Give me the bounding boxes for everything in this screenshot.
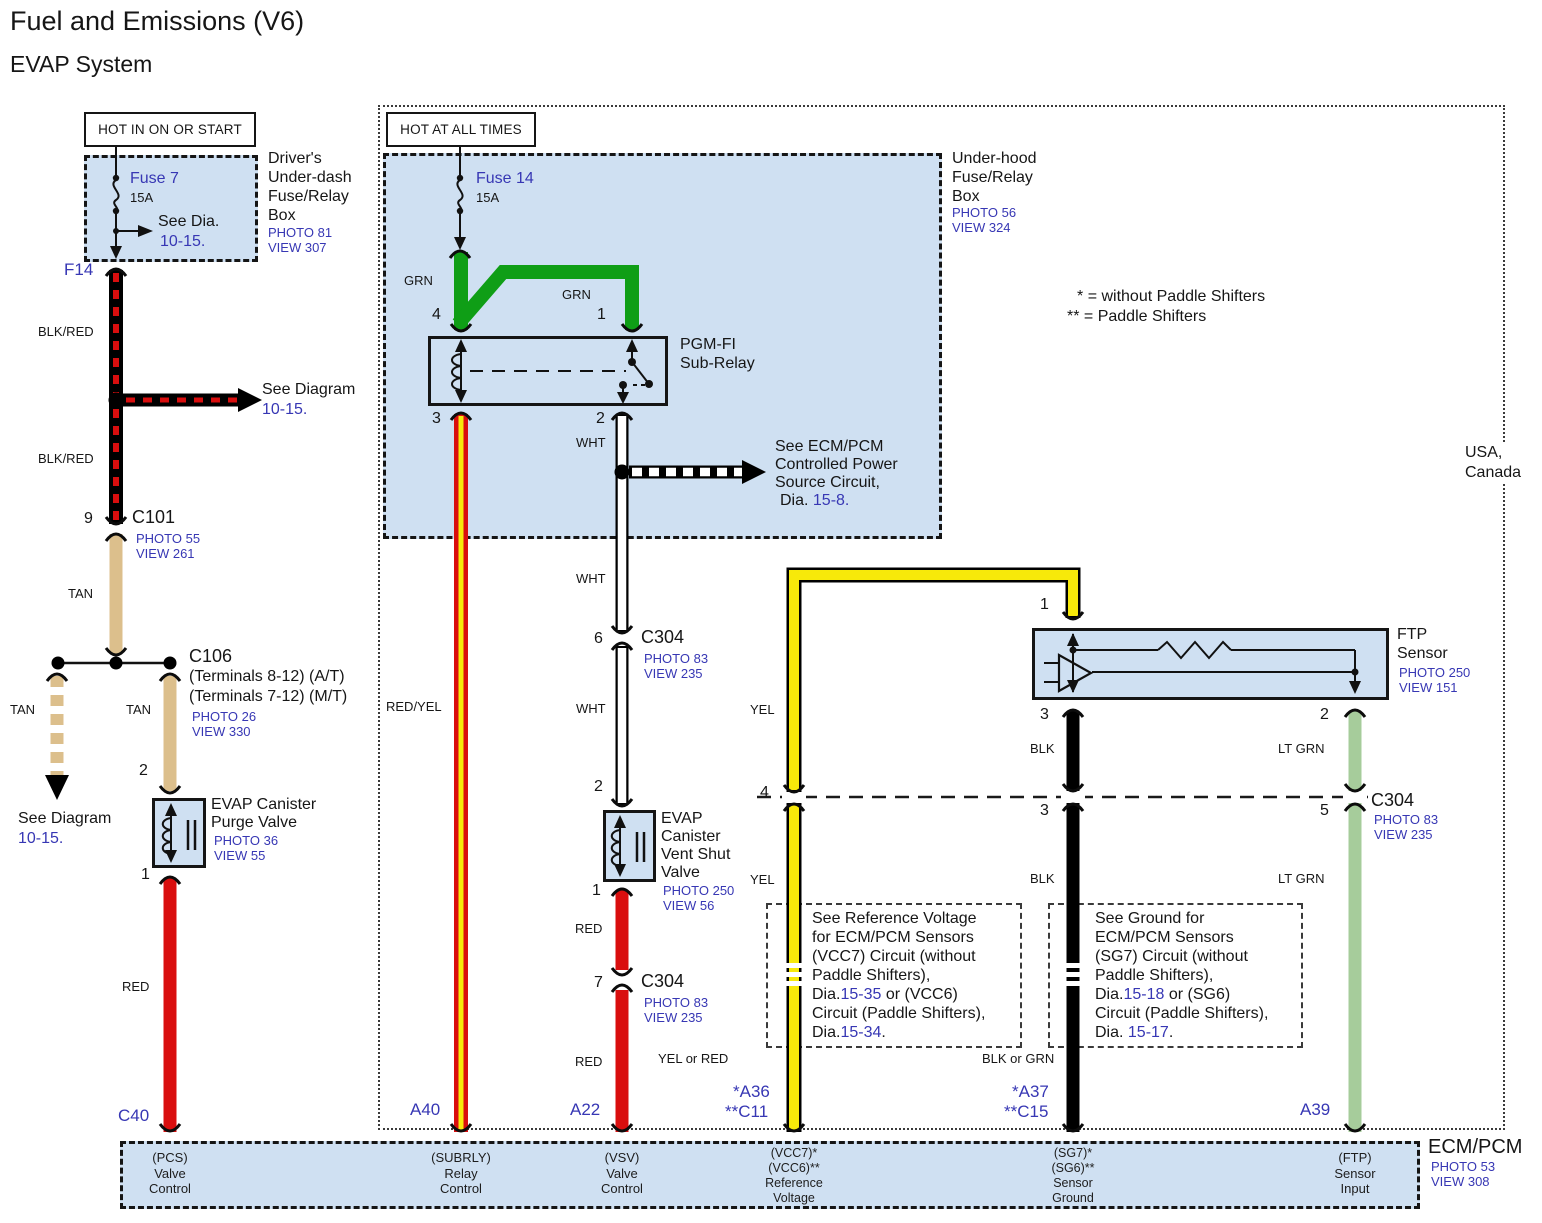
ref-note-5-pre: Dia. xyxy=(812,986,840,1003)
fuse7-rating: 15A xyxy=(130,191,153,206)
vent-valve-name-1: EVAP xyxy=(661,810,703,828)
see-ecm-line-3: Source Circuit, xyxy=(775,474,880,492)
c106-terminals-at: (Terminals 8-12) (A/T) xyxy=(189,668,345,686)
terminal-subrly-line3: Control xyxy=(396,1181,526,1197)
c304b-photo-link[interactable]: PHOTO 83 xyxy=(644,996,708,1011)
wire-label-grn-2: GRN xyxy=(562,288,591,303)
ftp-pin-2: 2 xyxy=(1320,706,1329,724)
legend-line-1: * = without Paddle Shifters xyxy=(1077,288,1265,306)
page-subtitle: EVAP System xyxy=(10,52,152,78)
ref-note-line-6: Circuit (Paddle Shifters), xyxy=(812,1005,985,1023)
wire-label-blk-red-2: BLK/RED xyxy=(38,452,94,467)
relay-pin-1: 1 xyxy=(597,306,606,324)
vent-valve-view-link[interactable]: VIEW 56 xyxy=(663,899,714,914)
terminal-vsv-line3: Control xyxy=(557,1181,687,1197)
driver-box-name-1: Driver's xyxy=(268,150,322,168)
wires-layer xyxy=(0,0,1542,1223)
wire-blk-red xyxy=(109,270,263,524)
vent-pin-1: 1 xyxy=(592,882,601,900)
connector-a37[interactable]: *A37 xyxy=(1012,1082,1049,1101)
terminal-pcs-line2: Valve xyxy=(105,1166,235,1182)
connector-a22[interactable]: A22 xyxy=(570,1100,600,1119)
wire-label-yel-or-red: YEL or RED xyxy=(658,1052,728,1067)
banner-hot-at-all-times: HOT AT ALL TIMES xyxy=(386,112,536,147)
driver-see-dia: See Dia. xyxy=(158,213,219,231)
vent-valve-name-3: Vent Shut xyxy=(661,846,730,864)
terminal-subrly-line2: Relay xyxy=(396,1166,526,1182)
connector-c304-b: C304 xyxy=(641,971,684,991)
banner-hot-in-on-or-start: HOT IN ON OR START xyxy=(84,112,256,147)
ftp-photo-link[interactable]: PHOTO 250 xyxy=(1399,666,1470,681)
driver-box-view-link[interactable]: VIEW 307 xyxy=(268,241,327,256)
ref-note-7-pre: Dia. xyxy=(812,1024,840,1041)
terminal-pcs-id: (PCS) xyxy=(105,1150,235,1166)
terminal-sg-id2: (SG6)** xyxy=(1008,1161,1138,1176)
terminal-vsv-line2: Valve xyxy=(557,1166,687,1182)
fuse7-label[interactable]: Fuse 7 xyxy=(130,170,179,188)
terminal-sg-line4: Ground xyxy=(1008,1191,1138,1206)
wire-yel xyxy=(785,575,1073,1132)
c304a-pin-6: 6 xyxy=(594,630,603,648)
relay-pin-2: 2 xyxy=(596,410,605,428)
see-ecm-line-1: See ECM/PCM xyxy=(775,438,883,456)
purge-pin-1: 1 xyxy=(141,866,150,884)
ftp-pin-1: 1 xyxy=(1040,596,1049,614)
vent-valve-photo-link[interactable]: PHOTO 250 xyxy=(663,884,734,899)
wire-label-red-yel: RED/YEL xyxy=(386,700,442,715)
c304a-photo-link[interactable]: PHOTO 83 xyxy=(644,652,708,667)
gnd-note-7-link[interactable]: 15-17 xyxy=(1128,1024,1169,1041)
ecm-terminal-vcc: (VCC7)* (VCC6)** Reference Voltage xyxy=(729,1146,859,1206)
c304c-view-link[interactable]: VIEW 235 xyxy=(1374,828,1433,843)
vent-pin-2: 2 xyxy=(594,778,603,796)
wire-label-blk-red-1: BLK/RED xyxy=(38,325,94,340)
wire-label-blk-or-grn: BLK or GRN xyxy=(982,1052,1054,1067)
see-diagram-bottom-link[interactable]: 10-15. xyxy=(18,830,63,848)
terminal-vcc-id2: (VCC6)** xyxy=(729,1161,859,1176)
wire-blk xyxy=(1064,711,1082,1132)
relay-pin-3: 3 xyxy=(432,410,441,428)
wiring-diagram-page: HOT IN ON OR START HOT AT ALL TIMES Fuel… xyxy=(0,0,1542,1223)
wire-label-ltgrn-1: LT GRN xyxy=(1278,742,1324,757)
fuse14-rating: 15A xyxy=(476,191,499,206)
wire-label-wht-3: WHT xyxy=(576,702,606,717)
gnd-note-line-4: Paddle Shifters), xyxy=(1095,967,1213,985)
underhood-name-2: Fuse/Relay xyxy=(952,169,1033,187)
ref-note-5-post: or (VCC6) xyxy=(881,986,957,1003)
wire-label-grn-1: GRN xyxy=(404,274,433,289)
driver-box-photo-link[interactable]: PHOTO 81 xyxy=(268,226,332,241)
purge-valve-view-link[interactable]: VIEW 55 xyxy=(214,849,265,864)
connector-c101: C101 xyxy=(132,507,175,527)
c101-photo-link[interactable]: PHOTO 55 xyxy=(136,532,200,547)
ftp-sensor-name-1: FTP xyxy=(1397,626,1427,644)
legend-line-2: ** = Paddle Shifters xyxy=(1067,308,1206,326)
see-diagram-bottom: See Diagram xyxy=(18,810,111,828)
ecm-pcm-label: ECM/PCM xyxy=(1428,1136,1522,1158)
wire-tan xyxy=(45,534,170,800)
c304b-view-link[interactable]: VIEW 235 xyxy=(644,1011,703,1026)
connector-c40[interactable]: C40 xyxy=(118,1106,149,1125)
ref-note-7-link[interactable]: 15-34 xyxy=(840,1024,881,1041)
connector-f14[interactable]: F14 xyxy=(64,260,93,279)
driver-box-name-3: Fuse/Relay xyxy=(268,188,349,206)
gnd-note-line-6: Circuit (Paddle Shifters), xyxy=(1095,1005,1268,1023)
gnd-note-line-5: Dia.15-18 or (SG6) xyxy=(1095,986,1230,1004)
wire-label-yel-1: YEL xyxy=(750,703,775,718)
wire-wht xyxy=(615,414,767,805)
terminal-ftp-line2: Sensor xyxy=(1290,1166,1420,1182)
banner-mid-text: HOT AT ALL TIMES xyxy=(400,122,522,137)
region-label-usa: USA, xyxy=(1462,444,1505,462)
c106-terminals-mt: (Terminals 7-12) (M/T) xyxy=(189,688,347,706)
relay-name-2: Sub-Relay xyxy=(680,355,755,373)
driver-box-name-2: Under-dash xyxy=(268,169,352,187)
c101-view-link[interactable]: VIEW 261 xyxy=(136,547,195,562)
see-diagram-mid-link[interactable]: 10-15. xyxy=(262,401,307,419)
ref-note-line-1: See Reference Voltage xyxy=(812,910,977,928)
c304b-pin-7: 7 xyxy=(594,974,603,992)
ref-note-7-post: . xyxy=(881,1024,885,1041)
fuse14-label[interactable]: Fuse 14 xyxy=(476,170,534,188)
wire-label-tan-right: TAN xyxy=(126,703,151,718)
ecm-terminal-subrly: (SUBRLY) Relay Control xyxy=(396,1150,526,1197)
wire-label-blk-1: BLK xyxy=(1030,742,1055,757)
legend-star-1: * xyxy=(1077,288,1083,305)
ecm-terminal-pcs: (PCS) Valve Control xyxy=(105,1150,235,1197)
underhood-photo-link[interactable]: PHOTO 56 xyxy=(952,206,1016,221)
gnd-note-7-pre: Dia. xyxy=(1095,1024,1128,1041)
ftp-sensor-internals xyxy=(1044,633,1361,694)
ftp-sensor-name-2: Sensor xyxy=(1397,645,1448,663)
terminal-subrly-id: (SUBRLY) xyxy=(396,1150,526,1166)
ref-note-line-4: Paddle Shifters), xyxy=(812,967,930,985)
see-diagram-mid: See Diagram xyxy=(262,381,355,399)
gnd-note-7-post: . xyxy=(1169,1024,1173,1041)
wire-label-ltgrn-2: LT GRN xyxy=(1278,872,1324,887)
wire-label-wht-1: WHT xyxy=(576,436,606,451)
connector-c304-a: C304 xyxy=(641,627,684,647)
ref-note-line-2: for ECM/PCM Sensors xyxy=(812,929,974,947)
c304c-pin-4: 4 xyxy=(760,784,769,802)
ecm-view-link[interactable]: VIEW 308 xyxy=(1431,1175,1490,1190)
connector-c15[interactable]: **C15 xyxy=(1004,1102,1048,1121)
ref-note-5-link[interactable]: 15-35 xyxy=(840,986,881,1003)
underhood-name-3: Box xyxy=(952,188,980,206)
gnd-note-line-2: ECM/PCM Sensors xyxy=(1095,929,1234,947)
wire-label-blk-2: BLK xyxy=(1030,872,1055,887)
driver-see-dia-link[interactable]: 10-15. xyxy=(160,233,205,251)
page-title: Fuel and Emissions (V6) xyxy=(10,6,304,36)
banner-left-text: HOT IN ON OR START xyxy=(98,122,242,137)
vent-valve-name-2: Canister xyxy=(661,828,721,846)
c304-connector-line xyxy=(757,789,1368,805)
terminal-vsv-id: (VSV) xyxy=(557,1150,687,1166)
gnd-note-line-1: See Ground for xyxy=(1095,910,1204,928)
connector-a40[interactable]: A40 xyxy=(410,1100,440,1119)
relay-name-1: PGM-FI xyxy=(680,336,736,354)
wire-label-wht-2: WHT xyxy=(576,572,606,587)
legend-text-2: = Paddle Shifters xyxy=(1084,308,1206,325)
see-ecm-dia-link[interactable]: 15-8. xyxy=(813,492,849,509)
ecm-photo-link[interactable]: PHOTO 53 xyxy=(1431,1160,1495,1175)
fuse14-symbol xyxy=(454,143,466,250)
connector-a36[interactable]: *A36 xyxy=(733,1082,770,1101)
vent-valve-name-4: Valve xyxy=(661,864,700,882)
tan-left-text: TAN xyxy=(10,702,35,717)
terminal-ftp-line3: Input xyxy=(1290,1181,1420,1197)
legend-star-2: ** xyxy=(1067,308,1079,325)
wire-label-red-mid-1: RED xyxy=(575,922,602,937)
terminal-pcs-line3: Control xyxy=(105,1181,235,1197)
terminal-sg-id1: (SG7)* xyxy=(1008,1146,1138,1161)
c106-photo-link[interactable]: PHOTO 26 xyxy=(192,710,256,725)
ref-note-line-7: Dia.15-34. xyxy=(812,1024,886,1042)
ref-note-line-5: Dia.15-35 or (VCC6) xyxy=(812,986,958,1004)
purge-valve-name-2: Purge Valve xyxy=(211,814,297,832)
ecm-terminal-ftp: (FTP) Sensor Input xyxy=(1290,1150,1420,1197)
c106-view-link[interactable]: VIEW 330 xyxy=(192,725,251,740)
gnd-note-line-7: Dia. 15-17. xyxy=(1095,1024,1173,1042)
see-ecm-line-4: Dia. 15-8. xyxy=(780,492,849,510)
gnd-note-5-pre: Dia. xyxy=(1095,986,1123,1003)
ecm-terminal-vsv: (VSV) Valve Control xyxy=(557,1150,687,1197)
c304a-view-link[interactable]: VIEW 235 xyxy=(644,667,703,682)
purge-valve-internals xyxy=(163,803,195,863)
vent-valve-internals xyxy=(612,815,644,877)
wire-label-tan-mid: TAN xyxy=(68,587,93,602)
underhood-view-link[interactable]: VIEW 324 xyxy=(952,221,1011,236)
terminal-vcc-id1: (VCC7)* xyxy=(729,1146,859,1161)
wire-label-yel-2: YEL xyxy=(750,873,775,888)
underhood-name-1: Under-hood xyxy=(952,150,1037,168)
relay-pin-4: 4 xyxy=(432,306,441,324)
terminal-vcc-line3: Reference xyxy=(729,1176,859,1191)
wire-label-tan-left: TAN xyxy=(10,703,35,718)
purge-valve-photo-link[interactable]: PHOTO 36 xyxy=(214,834,278,849)
c304c-pin-3: 3 xyxy=(1040,802,1049,820)
gnd-note-line-3: (SG7) Circuit (without xyxy=(1095,948,1248,966)
connector-c304-c: C304 xyxy=(1371,790,1414,810)
see-ecm-dia-text: Dia. xyxy=(780,492,813,509)
ref-note-line-3: (VCC7) Circuit (without xyxy=(812,948,976,966)
terminal-ftp-id: (FTP) xyxy=(1290,1150,1420,1166)
purge-valve-name-1: EVAP Canister xyxy=(211,796,316,814)
connector-c11[interactable]: **C11 xyxy=(725,1102,768,1121)
legend-text-1: = without Paddle Shifters xyxy=(1088,288,1265,305)
purge-pin-2: 2 xyxy=(139,762,148,780)
ftp-view-link[interactable]: VIEW 151 xyxy=(1399,681,1458,696)
terminal-sg-line3: Sensor xyxy=(1008,1176,1138,1191)
c101-pin-9: 9 xyxy=(84,510,93,528)
region-label-canada: Canada xyxy=(1462,464,1524,482)
ecm-terminal-sg: (SG7)* (SG6)** Sensor Ground xyxy=(1008,1146,1138,1206)
relay-internals xyxy=(452,339,653,404)
c304c-pin-5: 5 xyxy=(1320,802,1329,820)
connector-c106: C106 xyxy=(189,646,232,666)
c304c-photo-link[interactable]: PHOTO 83 xyxy=(1374,813,1438,828)
wire-label-red-mid-2: RED xyxy=(575,1055,602,1070)
connector-a39[interactable]: A39 xyxy=(1300,1100,1330,1119)
gnd-note-5-link[interactable]: 15-18 xyxy=(1123,986,1164,1003)
see-ecm-line-2: Controlled Power xyxy=(775,456,898,474)
driver-box-name-4: Box xyxy=(268,207,296,225)
gnd-note-5-post: or (SG6) xyxy=(1164,986,1230,1003)
wire-label-red-left: RED xyxy=(122,980,149,995)
terminal-vcc-line4: Voltage xyxy=(729,1191,859,1206)
ftp-pin-3: 3 xyxy=(1040,706,1049,724)
